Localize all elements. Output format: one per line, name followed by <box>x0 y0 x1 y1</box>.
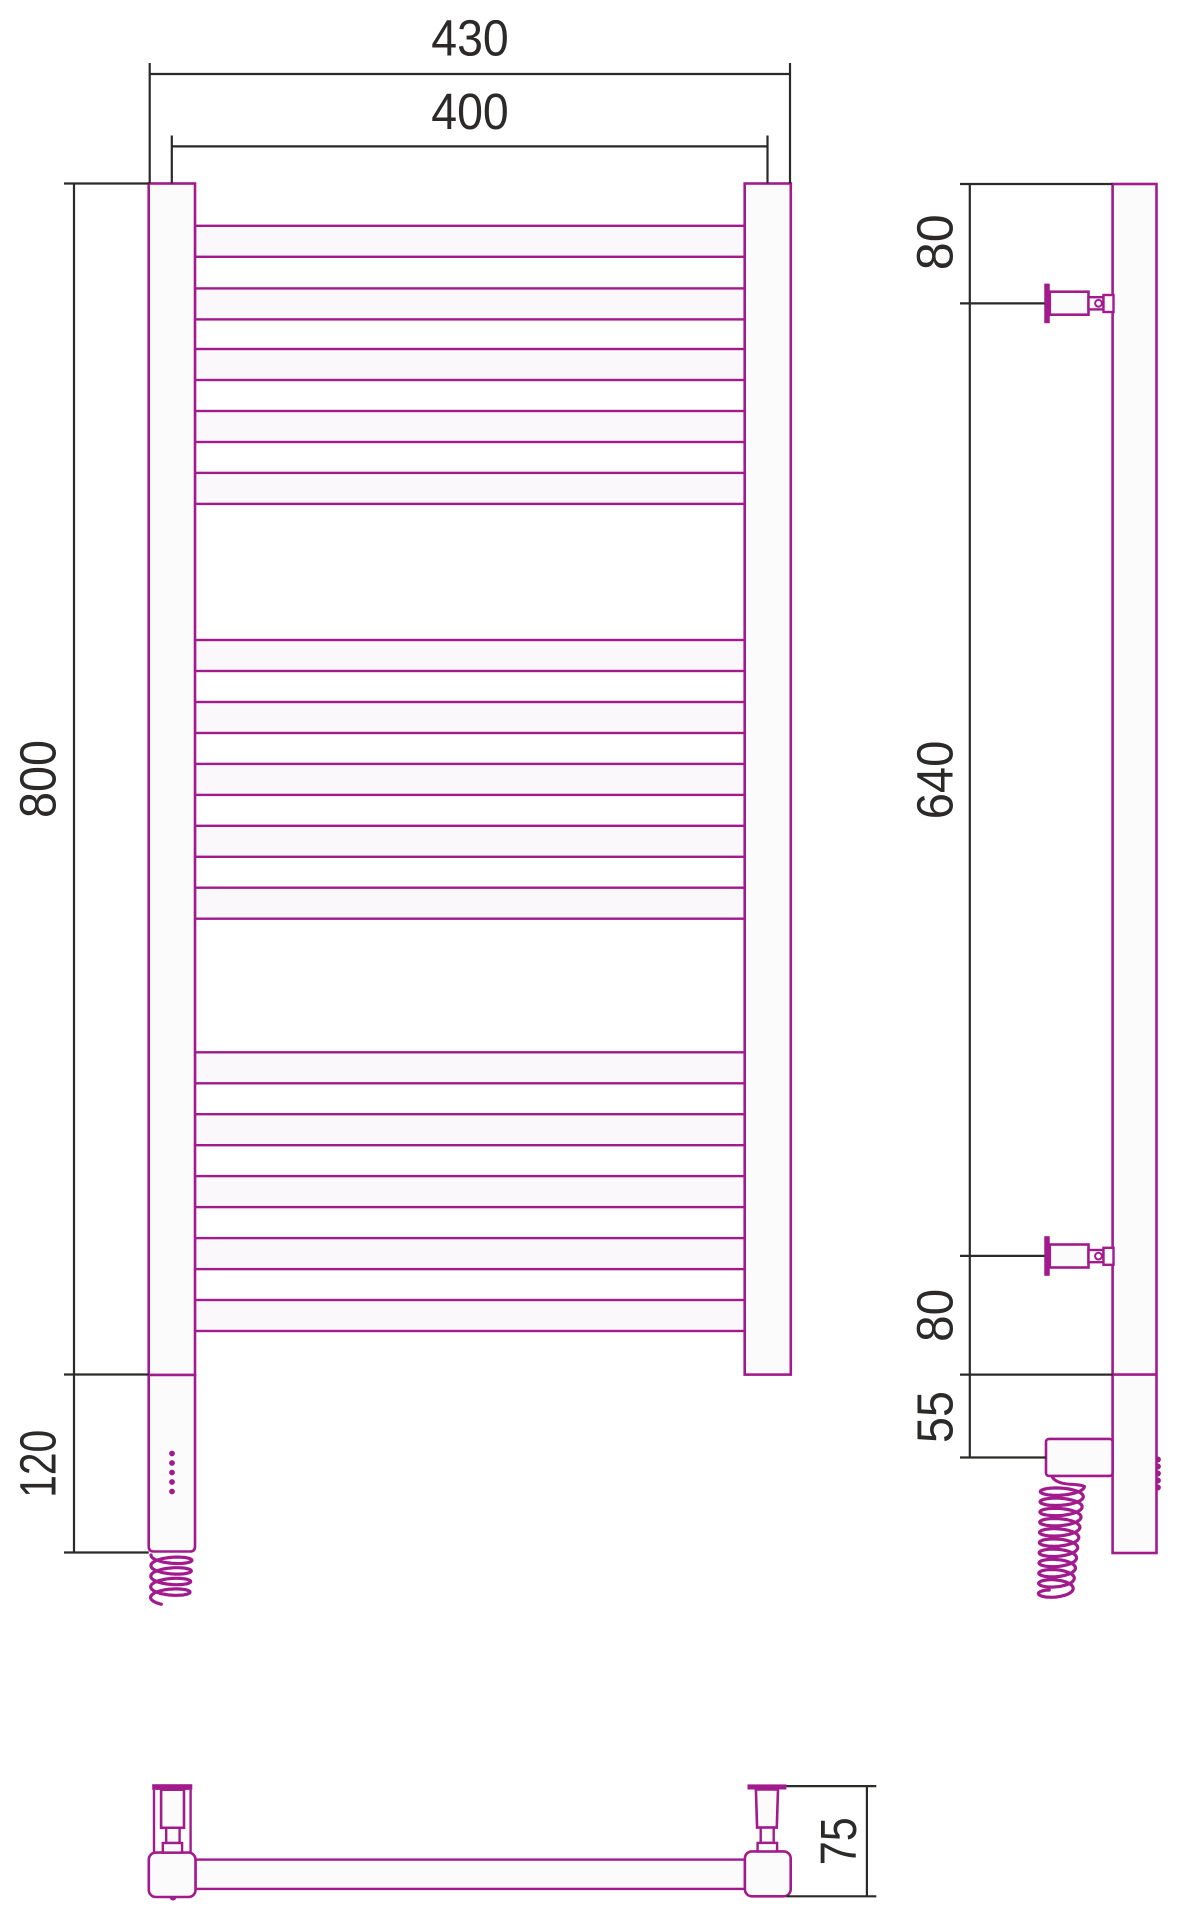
svg-text:120: 120 <box>9 1430 66 1498</box>
svg-text:55: 55 <box>907 1391 964 1443</box>
svg-text:430: 430 <box>431 10 509 67</box>
svg-text:80: 80 <box>907 214 964 270</box>
svg-text:800: 800 <box>9 740 66 818</box>
svg-text:400: 400 <box>431 83 509 140</box>
svg-text:80: 80 <box>907 1289 964 1342</box>
svg-text:640: 640 <box>907 741 964 820</box>
svg-text:75: 75 <box>810 1817 867 1865</box>
